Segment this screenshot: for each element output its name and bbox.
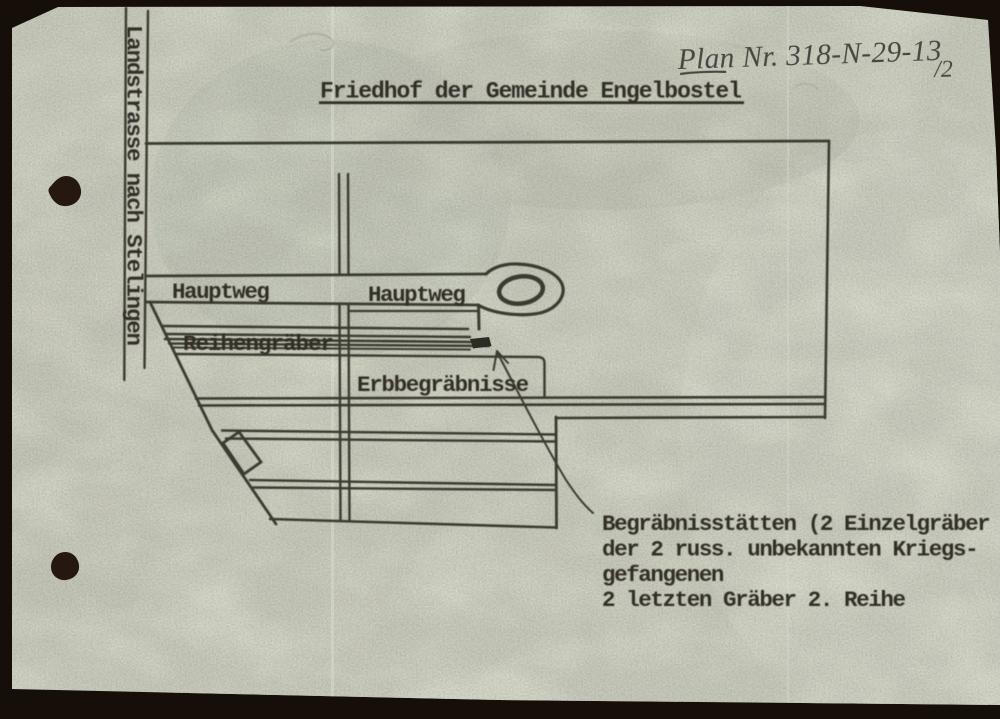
svg-text:gefangenen: gefangenen: [602, 562, 724, 588]
svg-text:/2: /2: [932, 56, 954, 83]
svg-text:Landstrasse nach Stelingen: Landstrasse nach Stelingen: [121, 25, 147, 346]
svg-text:Begräbnisstätten (2 Einzelgräb: Begräbnisstätten (2 Einzelgräber: [602, 511, 989, 537]
svg-text:Hauptweg: Hauptweg: [368, 282, 465, 308]
svg-text:der 2 russ. unbekannten Kriegs: der 2 russ. unbekannten Kriegs-: [602, 537, 977, 563]
svg-text:Hauptweg: Hauptweg: [172, 279, 269, 305]
svg-text:Friedhof der Gemeinde Engelbos: Friedhof der Gemeinde Engelbostel: [320, 79, 741, 105]
svg-text:Erbbegräbnisse: Erbbegräbnisse: [357, 372, 529, 398]
svg-text:Reihengräber: Reihengräber: [183, 331, 333, 357]
svg-text:2 letzten Gräber 2. Reihe: 2 letzten Gräber 2. Reihe: [602, 587, 905, 613]
